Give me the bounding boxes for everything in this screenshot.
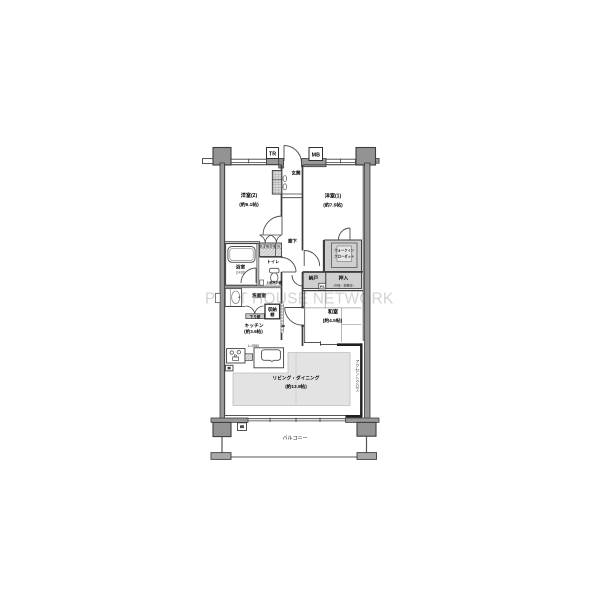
svg-text:洗濯機置場: 洗濯機置場	[260, 244, 277, 249]
svg-text:(中段・枕棚付): (中段・枕棚付)	[334, 282, 354, 287]
svg-text:玄関: 玄関	[292, 170, 301, 177]
svg-text:(約7.5帖): (約7.5帖)	[323, 202, 343, 209]
svg-text:PS: PS	[320, 285, 325, 289]
svg-text:トイレ: トイレ	[267, 259, 280, 264]
svg-text:(約3.6帖): (約3.6帖)	[244, 328, 263, 335]
svg-text:押入: 押入	[339, 275, 349, 282]
svg-text:洗面室: 洗面室	[252, 292, 266, 299]
svg-text:(約13.9帖): (約13.9帖)	[285, 383, 307, 390]
svg-text:物: 物	[277, 244, 280, 249]
svg-text:廊下: 廊下	[288, 238, 297, 245]
svg-text:(約6.1帖): (約6.1帖)	[239, 201, 259, 208]
svg-text:上部吊戸棚: 上部吊戸棚	[266, 280, 283, 285]
svg-text:アクセントクロス: アクセントクロス	[355, 359, 360, 392]
svg-text:浴室: 浴室	[236, 264, 246, 271]
svg-text:クローゼット: クローゼット	[334, 254, 354, 259]
svg-text:(約4.5帖): (約4.5帖)	[323, 317, 343, 324]
svg-text:バルコニー: バルコニー	[283, 436, 308, 442]
svg-text:洋室(1): 洋室(1)	[325, 193, 342, 200]
svg-text:和室: 和室	[327, 309, 338, 316]
svg-text:TR: TR	[269, 152, 276, 158]
svg-text:ウォークイン: ウォークイン	[334, 248, 354, 253]
svg-text:MB: MB	[312, 153, 320, 159]
svg-text:棚: 棚	[270, 311, 274, 318]
svg-text:洋室(2): 洋室(2)	[241, 192, 258, 199]
svg-text:下り壁: 下り壁	[250, 314, 261, 319]
svg-text:納戸: 納戸	[309, 275, 319, 282]
svg-text:リビング・ダイニング: リビング・ダイニング	[273, 375, 320, 382]
